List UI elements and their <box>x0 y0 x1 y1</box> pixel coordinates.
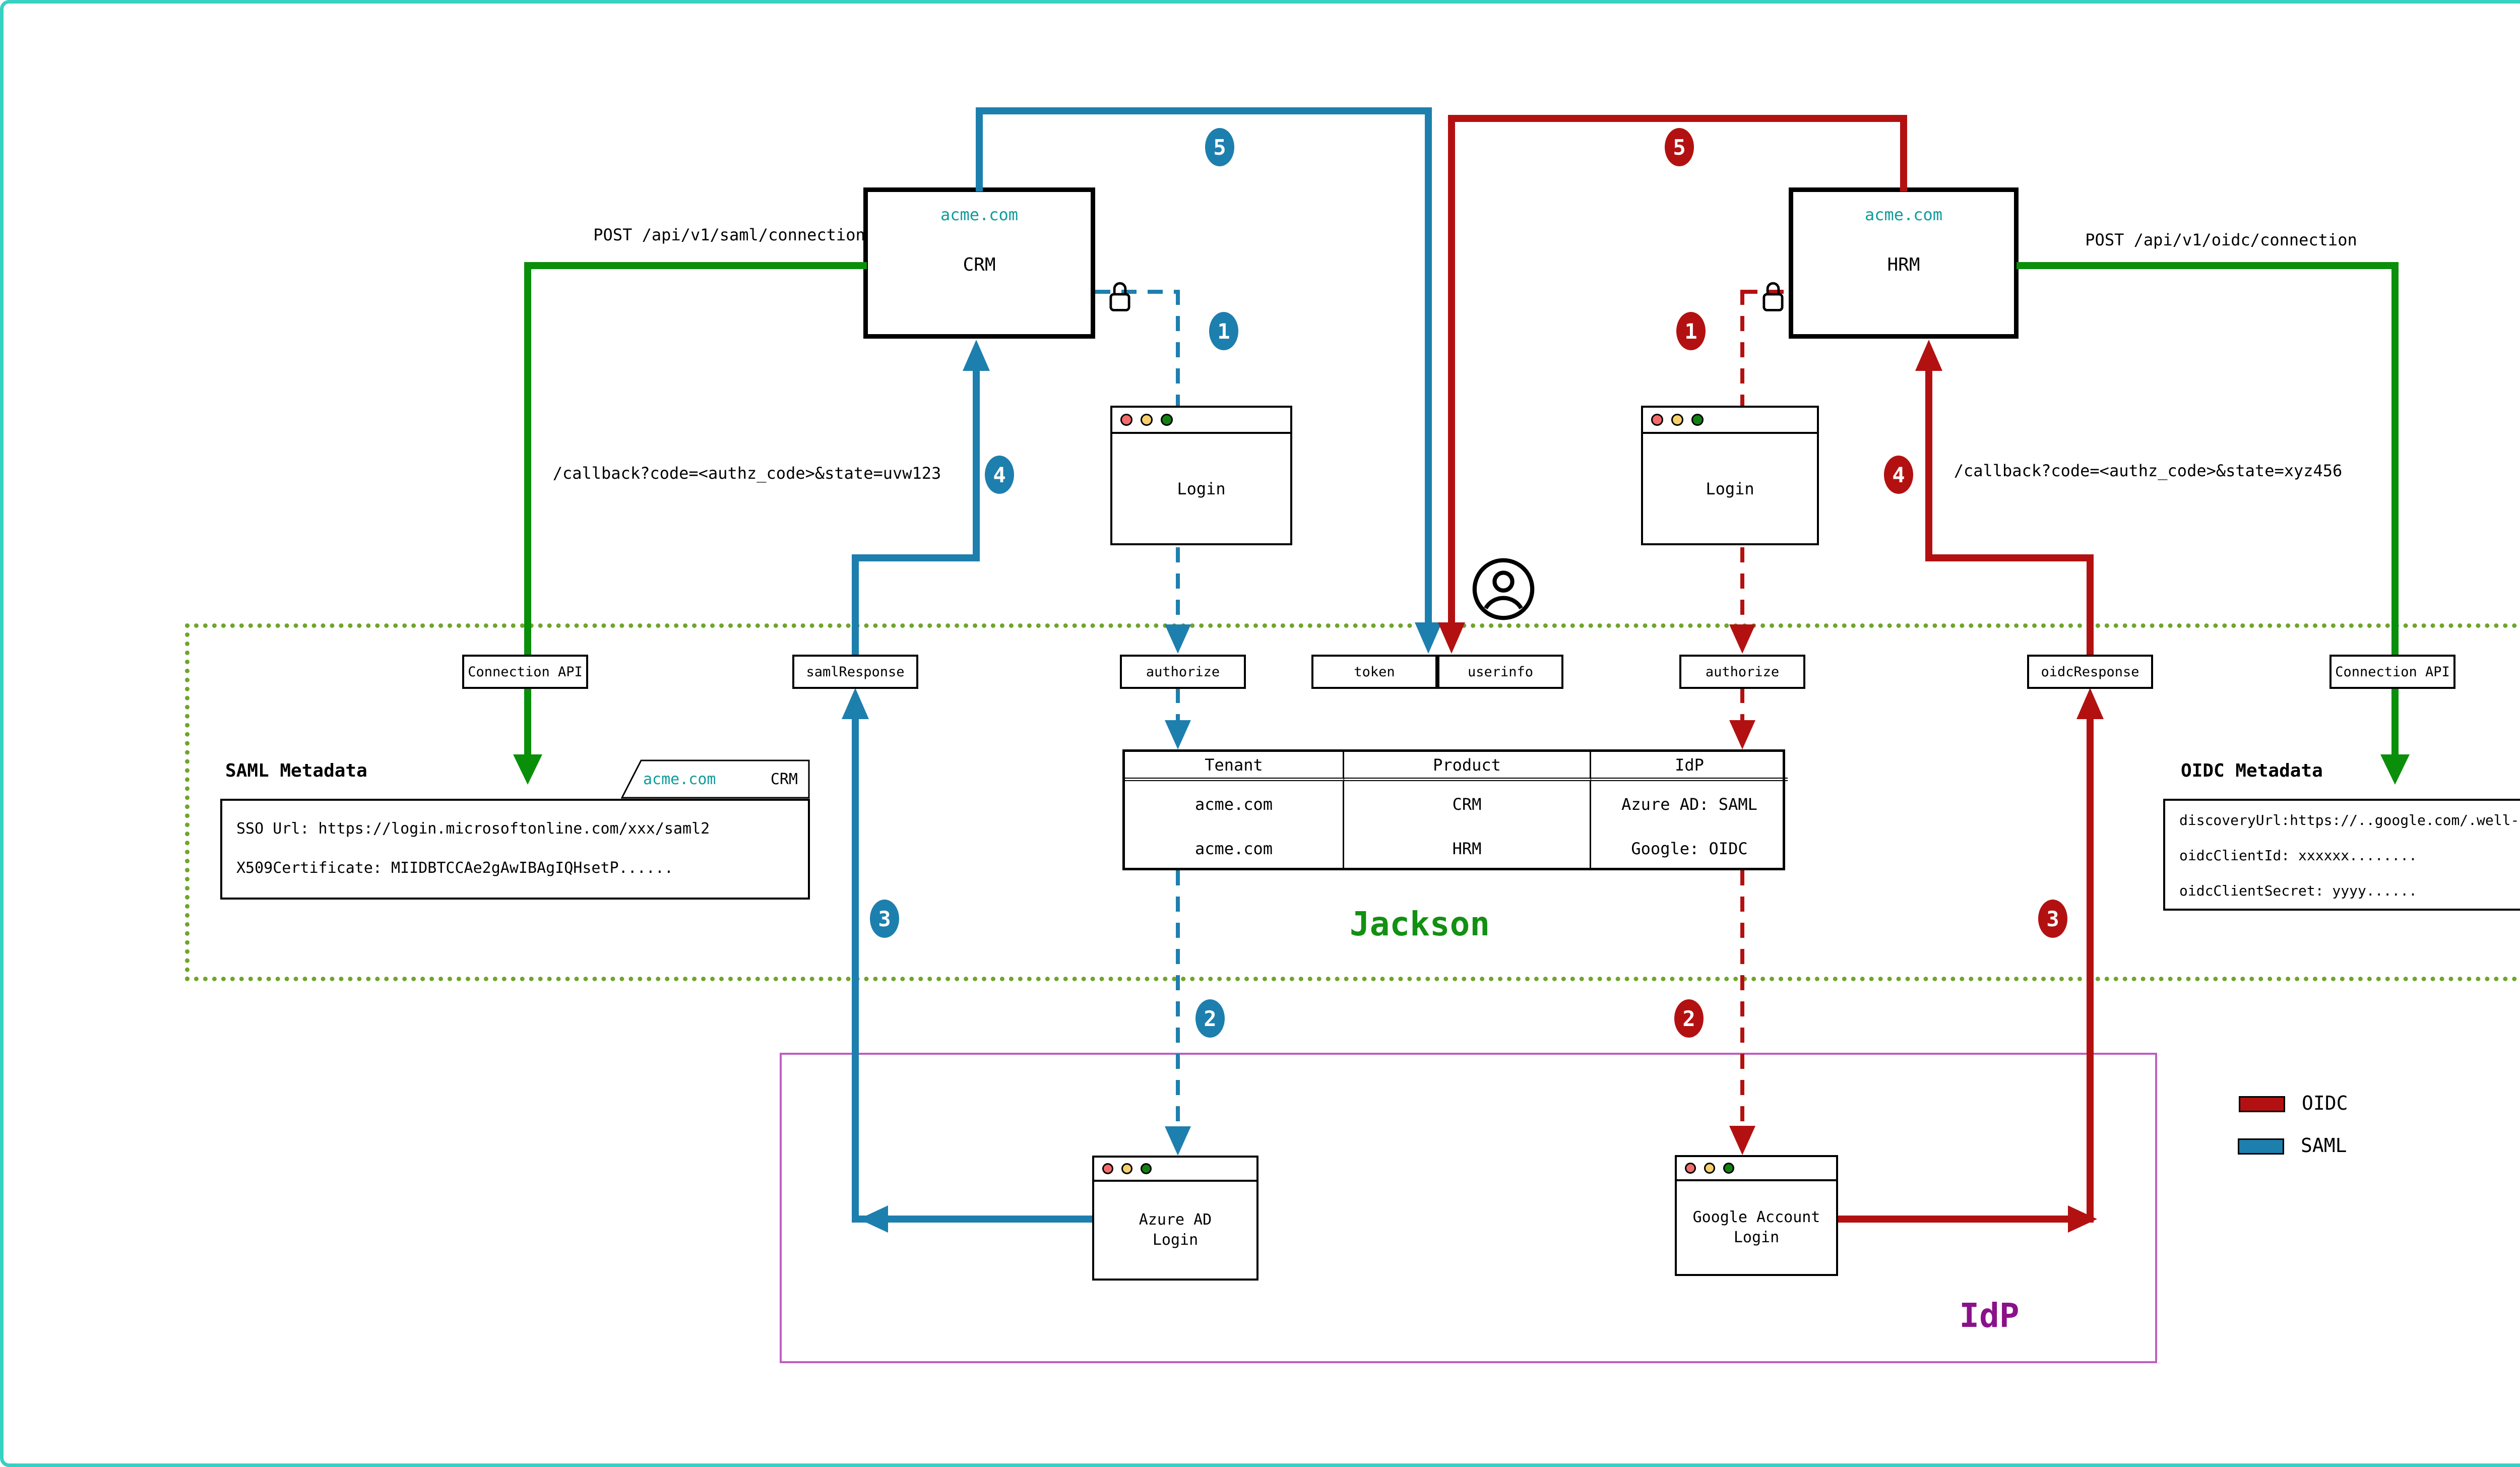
oidc-step-1-badge: 1 <box>1676 312 1706 350</box>
oidc-flow5-line-up <box>1900 115 1907 192</box>
oidc-flow3-arrow-icon <box>2068 1205 2097 1233</box>
saml-flow3-line-v <box>852 717 859 1223</box>
legend-oidc-label: OIDC <box>2302 1092 2348 1114</box>
saml-flow5-line-top <box>976 107 1432 114</box>
saml-step-2-badge: 2 <box>1195 999 1225 1038</box>
tab-domain-label: acme.com <box>621 771 738 788</box>
close-icon <box>1651 414 1663 426</box>
oidc-flow1-dash-v1 <box>1740 290 1744 406</box>
table-cell: acme.com <box>1125 827 1344 870</box>
google-login-window: Google Account Login <box>1675 1155 1838 1276</box>
window-titlebar <box>1643 408 1817 434</box>
close-icon <box>1120 414 1132 426</box>
close-icon <box>1102 1163 1113 1174</box>
oidc-flow2-dash-v <box>1740 870 1744 1127</box>
legend-saml-label: SAML <box>2301 1134 2347 1157</box>
connections-table: Tenant Product IdP acme.com CRM Azure AD… <box>1122 749 1785 870</box>
oidc-userinfo-arrow-icon <box>1438 622 1465 654</box>
oidc-client-id: oidcClientId: xxxxxx........ <box>2179 847 2417 864</box>
oidc-discovery-url: discoveryUrl:https://..google.com/.well-… <box>2179 812 2520 828</box>
pill-authorize-right: authorize <box>1679 655 1805 689</box>
oidc-step-5-badge: 5 <box>1665 128 1694 166</box>
table-header-idp: IdP <box>1591 752 1788 781</box>
saml-connection-line-h <box>524 262 867 269</box>
table-cell: HRM <box>1344 827 1591 870</box>
pill-label: userinfo <box>1468 664 1533 680</box>
hrm-login-window: Login <box>1641 406 1819 545</box>
saml-x509-cert: X509Certificate: MIIDBTCCAe2gAwIBAgIQHse… <box>236 859 673 877</box>
maximize-icon <box>1691 414 1704 426</box>
pill-label: samlResponse <box>806 664 904 680</box>
pill-token: token <box>1311 655 1437 689</box>
saml-step-4-badge: 4 <box>985 456 1014 494</box>
azure-login-arrow-icon <box>1165 1126 1191 1156</box>
pill-oidcresponse: oidcResponse <box>2027 655 2153 689</box>
table-cell: Azure AD: SAML <box>1591 781 1788 827</box>
tenant-table-arrow-blue-icon <box>1165 720 1191 749</box>
saml-metadata-tab: acme.com CRM <box>621 759 810 799</box>
pill-authorize-left: authorize <box>1120 655 1246 689</box>
minimize-icon <box>1121 1163 1132 1174</box>
minimize-icon <box>1141 414 1153 426</box>
crm-app-box: acme.com CRM <box>863 187 1095 339</box>
crm-domain-label: acme.com <box>868 205 1091 224</box>
pill-label: authorize <box>1146 664 1220 680</box>
azure-login-label-line1: Azure AD <box>1139 1210 1212 1230</box>
oidc-metadata-arrow-icon <box>2380 754 2410 785</box>
oidc-flow3-line-v <box>2087 717 2094 1223</box>
crm-login-window: Login <box>1110 406 1292 545</box>
crm-name-label: CRM <box>868 254 1091 275</box>
saml-step-3-badge: 3 <box>870 900 899 938</box>
saml-flow3-arrow-icon <box>859 1205 888 1233</box>
oidc-connection-line-h <box>2017 262 2399 269</box>
table-cell: CRM <box>1344 781 1591 827</box>
oidc-flow4-line-h <box>1925 554 2094 561</box>
saml-flow3-line-h <box>859 1216 1096 1223</box>
pill-connection-api-right: Connection API <box>2329 655 2455 689</box>
tab-app-label: CRM <box>771 771 798 788</box>
google-login-arrow-icon <box>1729 1126 1755 1155</box>
oidc-metadata-box: discoveryUrl:https://..google.com/.well-… <box>2163 799 2520 911</box>
oidc-callback-label: /callback?code=<authz_code>&state=xyz456 <box>1949 457 2347 485</box>
sso-flow-diagram: acme.com CRM acme.com HRM POST /api/v1/s… <box>0 0 2520 1467</box>
hrm-name-label: HRM <box>1793 254 2014 275</box>
pill-label: Connection API <box>468 664 583 680</box>
oidcresponse-arrow-icon <box>2076 688 2104 719</box>
legend-oidc-swatch <box>2239 1096 2285 1112</box>
pill-userinfo: userinfo <box>1437 655 1563 689</box>
hrm-domain-label: acme.com <box>1793 205 2014 224</box>
saml-flow4-line-v1 <box>973 370 980 558</box>
table-cell: Google: OIDC <box>1591 827 1788 870</box>
idp-label: IdP <box>1909 1296 2070 1335</box>
pill-samlresponse: samlResponse <box>792 655 918 689</box>
window-titlebar <box>1094 1158 1256 1182</box>
oidc-flow1-dash-v2 <box>1740 547 1744 625</box>
saml-callback-label: /callback?code=<authz_code>&state=uvw123 <box>548 460 946 487</box>
oidc-flow3-line-h <box>1838 1216 2076 1223</box>
hrm-login-label: Login <box>1706 478 1754 499</box>
azure-login-window: Azure AD Login <box>1092 1156 1258 1281</box>
saml-flow5-line-up <box>976 107 983 192</box>
saml-step-5-badge: 5 <box>1205 128 1234 166</box>
crm-callback-arrow-icon <box>963 340 990 371</box>
pill-label: token <box>1354 664 1395 680</box>
person-icon <box>1470 556 1537 622</box>
close-icon <box>1685 1163 1696 1174</box>
table-cell: acme.com <box>1125 781 1344 827</box>
google-login-label-line1: Google Account <box>1693 1207 1820 1228</box>
legend-saml-swatch <box>2238 1138 2284 1155</box>
oidc-flow1-dash-v3 <box>1740 688 1744 721</box>
maximize-icon <box>1161 414 1173 426</box>
oidc-step-2-badge: 2 <box>1674 999 1704 1038</box>
saml-metadata-box: SSO Url: https://login.microsoftonline.c… <box>220 799 810 900</box>
table-header-product: Product <box>1344 752 1591 781</box>
saml-metadata-title: SAML Metadata <box>225 760 367 781</box>
oidc-client-secret: oidcClientSecret: yyyy...... <box>2179 882 2417 899</box>
oidc-metadata-title: OIDC Metadata <box>2181 760 2323 781</box>
pill-label: oidcResponse <box>2041 664 2139 680</box>
oidc-post-label: POST /api/v1/oidc/connection <box>2045 230 2398 249</box>
oidc-flow5-line-down <box>1448 115 1455 624</box>
maximize-icon <box>1141 1163 1152 1174</box>
jackson-label: Jackson <box>1294 905 1546 943</box>
authorize-left-arrow-icon <box>1165 624 1191 654</box>
oidc-step-3-badge: 3 <box>2038 900 2067 938</box>
google-login-label-line2: Login <box>1734 1228 1779 1248</box>
saml-flow1-dash-v3 <box>1176 688 1180 721</box>
saml-flow5-line-down <box>1425 107 1432 624</box>
pill-label: authorize <box>1706 664 1779 680</box>
pill-connection-api-left: Connection API <box>462 655 588 689</box>
minimize-icon <box>1704 1163 1715 1174</box>
table-header-tenant: Tenant <box>1125 752 1344 781</box>
saml-flow1-dash-v1 <box>1176 290 1180 406</box>
azure-login-label-line2: Login <box>1153 1230 1198 1250</box>
minimize-icon <box>1671 414 1683 426</box>
window-titlebar <box>1112 408 1290 434</box>
saml-flow4-line-v2 <box>852 554 859 655</box>
crm-login-label: Login <box>1177 478 1225 499</box>
saml-flow1-dash-v2 <box>1176 547 1180 625</box>
hrm-app-box: acme.com HRM <box>1789 187 2019 339</box>
hrm-callback-arrow-icon <box>1915 340 1942 371</box>
saml-sso-url: SSO Url: https://login.microsoftonline.c… <box>236 820 710 838</box>
pill-label: Connection API <box>2335 664 2450 680</box>
authorize-right-arrow-icon <box>1729 624 1755 654</box>
samlresponse-arrow-icon <box>842 688 869 719</box>
saml-flow2-dash-v <box>1176 870 1180 1127</box>
oidc-flow4-line-v1 <box>1925 370 1932 558</box>
saml-step-1-badge: 1 <box>1209 312 1238 350</box>
oidc-flow4-line-v2 <box>2087 554 2094 655</box>
oidc-step-4-badge: 4 <box>1884 456 1913 494</box>
idp-table-arrow-red-icon <box>1729 720 1755 749</box>
oidc-flow5-line-top <box>1448 115 1907 122</box>
saml-metadata-arrow-icon <box>513 754 542 785</box>
crm-lock-icon <box>1105 278 1135 316</box>
saml-post-label: POST /api/v1/saml/connection <box>553 225 906 244</box>
hrm-lock-icon <box>1758 278 1788 316</box>
maximize-icon <box>1723 1163 1734 1174</box>
window-titlebar <box>1677 1157 1836 1181</box>
saml-flow4-line-h <box>855 554 980 561</box>
